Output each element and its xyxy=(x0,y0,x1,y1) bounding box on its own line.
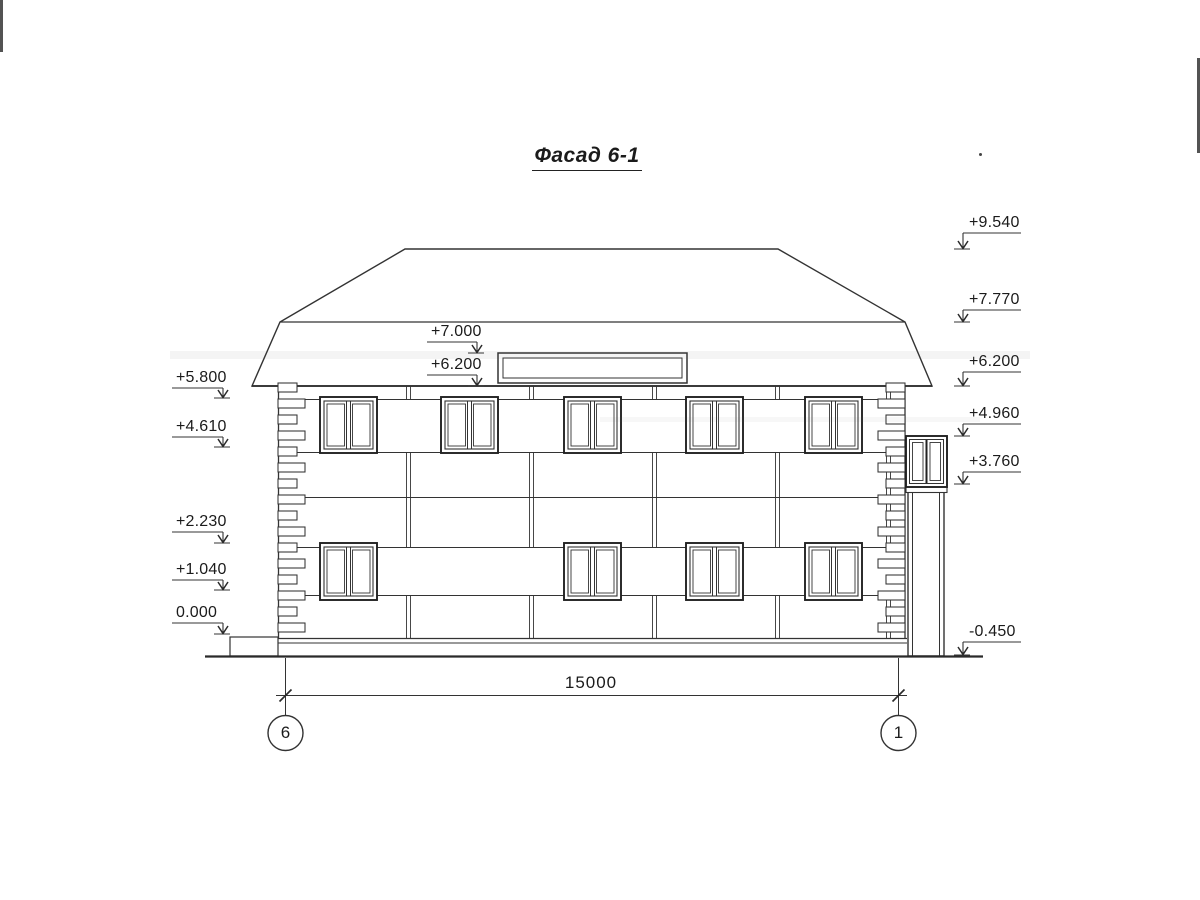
elevation-label: +3.760 xyxy=(969,453,1020,471)
quoin-block xyxy=(278,543,297,552)
window-outer-frame xyxy=(564,397,621,453)
quoin-block xyxy=(878,527,905,536)
quoin-block xyxy=(886,511,905,520)
window-outer-frame xyxy=(320,543,377,600)
quoin-block xyxy=(886,543,905,552)
window-outer-frame xyxy=(686,397,743,453)
elevation-mark xyxy=(172,388,230,398)
scan-edge-mark xyxy=(0,0,3,52)
elevation-label: +7.770 xyxy=(969,291,1020,309)
quoin-block xyxy=(878,559,905,568)
elevation-mark xyxy=(172,623,230,634)
quoin-block xyxy=(278,607,297,616)
facade-drawing xyxy=(0,0,1200,900)
elevation-mark xyxy=(954,233,1021,249)
quoin-block xyxy=(878,463,905,472)
annex xyxy=(906,436,947,656)
axis-number-left: 6 xyxy=(265,722,306,744)
window xyxy=(564,543,621,600)
elevation-label: +1.040 xyxy=(176,561,227,579)
quoin-block xyxy=(278,415,297,424)
window xyxy=(805,397,862,453)
annex-shaft xyxy=(908,492,944,656)
elevation-mark xyxy=(172,532,230,543)
elevation-label: +7.000 xyxy=(431,323,482,341)
quoin-block xyxy=(278,479,297,488)
quoin-block xyxy=(278,463,305,472)
quoin-block xyxy=(278,527,305,536)
quoin-block xyxy=(278,447,297,456)
quoin-block xyxy=(878,399,905,408)
quoin-block xyxy=(278,399,305,408)
window xyxy=(564,397,621,453)
quoin-block xyxy=(886,447,905,456)
quoin-block xyxy=(278,431,305,440)
elevation-mark xyxy=(172,437,230,447)
window xyxy=(686,543,743,600)
elevation-label: 0.000 xyxy=(176,604,217,622)
quoin-block xyxy=(886,575,905,584)
elevation-mark xyxy=(954,642,1021,655)
quoin-block xyxy=(878,623,905,632)
ink-dot xyxy=(979,153,982,156)
plinth xyxy=(230,637,907,656)
window-outer-frame xyxy=(564,543,621,600)
elevation-mark xyxy=(172,580,230,590)
window xyxy=(805,543,862,600)
elevation-label: +4.610 xyxy=(176,418,227,436)
elevation-mark xyxy=(954,472,1021,484)
quoin-block xyxy=(278,495,305,504)
scan-streak xyxy=(170,351,1030,359)
elevation-mark xyxy=(954,424,1021,436)
elevation-mark xyxy=(954,310,1021,322)
window xyxy=(686,397,743,453)
dimension-value: 15000 xyxy=(541,674,641,691)
quoin-block xyxy=(278,623,305,632)
windows xyxy=(320,397,862,600)
scan-streak xyxy=(600,417,980,422)
window xyxy=(320,543,377,600)
quoin-block xyxy=(886,383,905,392)
quoin-block xyxy=(278,559,305,568)
window-outer-frame xyxy=(320,397,377,453)
quoin-block xyxy=(878,431,905,440)
elevation-label: -0.450 xyxy=(969,623,1016,641)
elevation-label: +2.230 xyxy=(176,513,227,531)
axis-number-right: 1 xyxy=(878,722,919,744)
plinth-left-step xyxy=(230,637,278,656)
drawing-sheet: Фасад 6-1 +9.540+7.770+6.200+4.960+3.760… xyxy=(0,0,1200,900)
quoin-block xyxy=(878,495,905,504)
window-outer-frame xyxy=(805,543,862,600)
window-outer-frame xyxy=(805,397,862,453)
elevation-mark xyxy=(954,372,1021,386)
window-outer-frame xyxy=(441,397,498,453)
quoin-block xyxy=(278,511,297,520)
window-outer-frame xyxy=(686,543,743,600)
dimension xyxy=(268,658,916,751)
window xyxy=(441,397,498,453)
quoin-block xyxy=(886,607,905,616)
elevation-label: +9.540 xyxy=(969,214,1020,232)
drawing-title: Фасад 6-1 xyxy=(532,143,642,171)
elevation-label: +5.800 xyxy=(176,369,227,387)
window xyxy=(320,397,377,453)
quoin-block xyxy=(278,591,305,600)
quoin-block xyxy=(878,591,905,600)
quoin-block xyxy=(886,479,905,488)
quoin-block xyxy=(278,383,297,392)
quoin-block xyxy=(278,575,297,584)
